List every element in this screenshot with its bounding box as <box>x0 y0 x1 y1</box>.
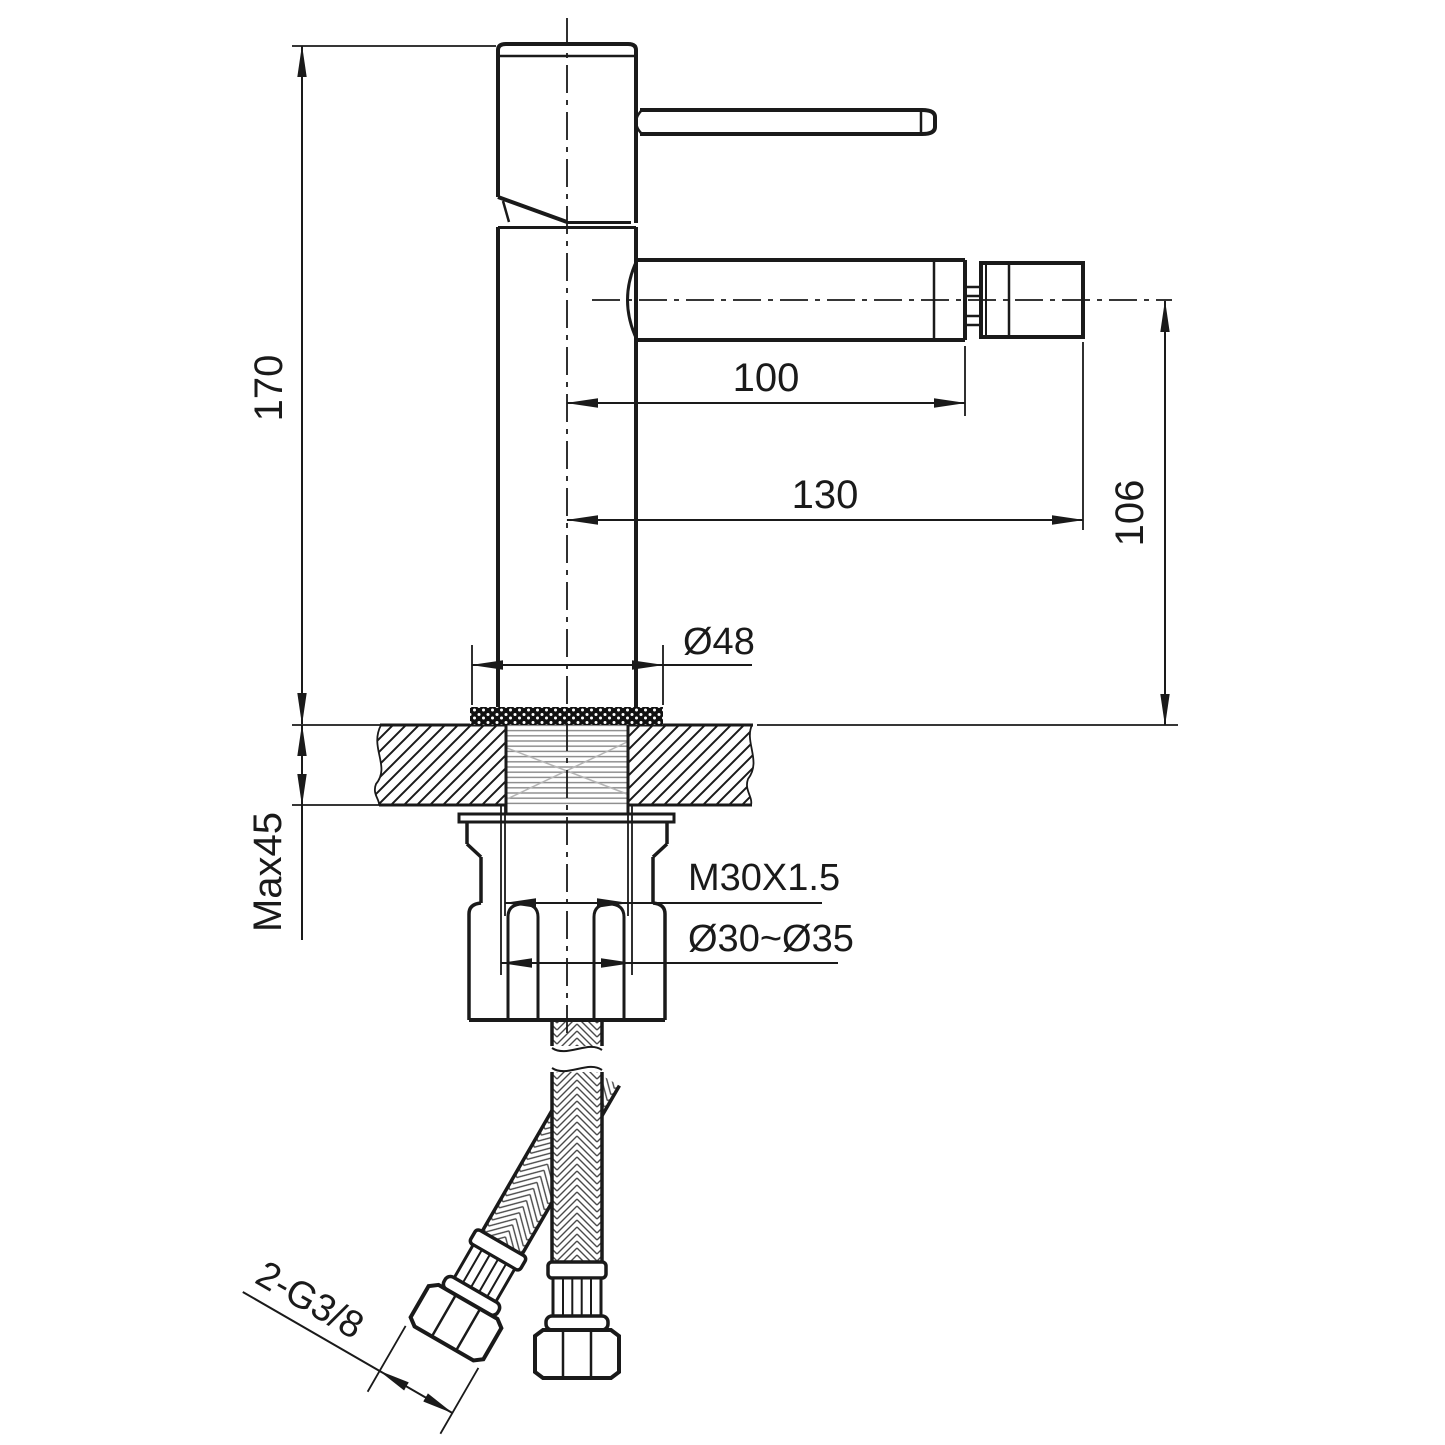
hex-nut <box>535 1330 619 1378</box>
dim-deck-thickness: Max45 <box>246 725 302 940</box>
dim-spout-height: 106 <box>1108 301 1165 725</box>
technical-drawing-page: 170 Max45 100 130 106 <box>0 0 1445 1445</box>
crimp-collar <box>548 1262 606 1278</box>
dim-label-total-reach: 130 <box>792 473 859 517</box>
dim-label-spout-reach: 100 <box>733 356 800 400</box>
dim-label-body-height: 170 <box>247 355 291 422</box>
dim-label-shank-thread: M30X1.5 <box>688 857 840 899</box>
deck-hatch-right <box>628 725 754 805</box>
centerlines <box>567 18 1172 1038</box>
dim-label-base-diameter: Ø48 <box>683 621 755 663</box>
dim-label-spout-height: 106 <box>1108 480 1152 547</box>
joint-sliver <box>503 201 509 222</box>
aerator-neck <box>965 287 981 325</box>
countertop-cross-section <box>292 725 1178 814</box>
dim-label-hose-connection: 2-G3/8 <box>249 1253 371 1347</box>
faucet-dimension-drawing: 170 Max45 100 130 106 <box>0 0 1445 1445</box>
fitting-ring <box>546 1316 608 1330</box>
dim-label-deck-thickness: Max45 <box>246 812 290 932</box>
hose-fitting-vertical <box>535 1262 619 1378</box>
hose-break <box>548 1046 606 1072</box>
dim-total-reach: 130 <box>567 342 1083 530</box>
deck-hatch-left <box>375 725 506 805</box>
crimp-body <box>553 1278 601 1318</box>
dim-line <box>380 1371 453 1413</box>
lever-handle <box>636 109 935 135</box>
dim-body-height: 170 <box>247 46 496 724</box>
dim-label-hole-diameter: Ø30~Ø35 <box>688 918 854 960</box>
